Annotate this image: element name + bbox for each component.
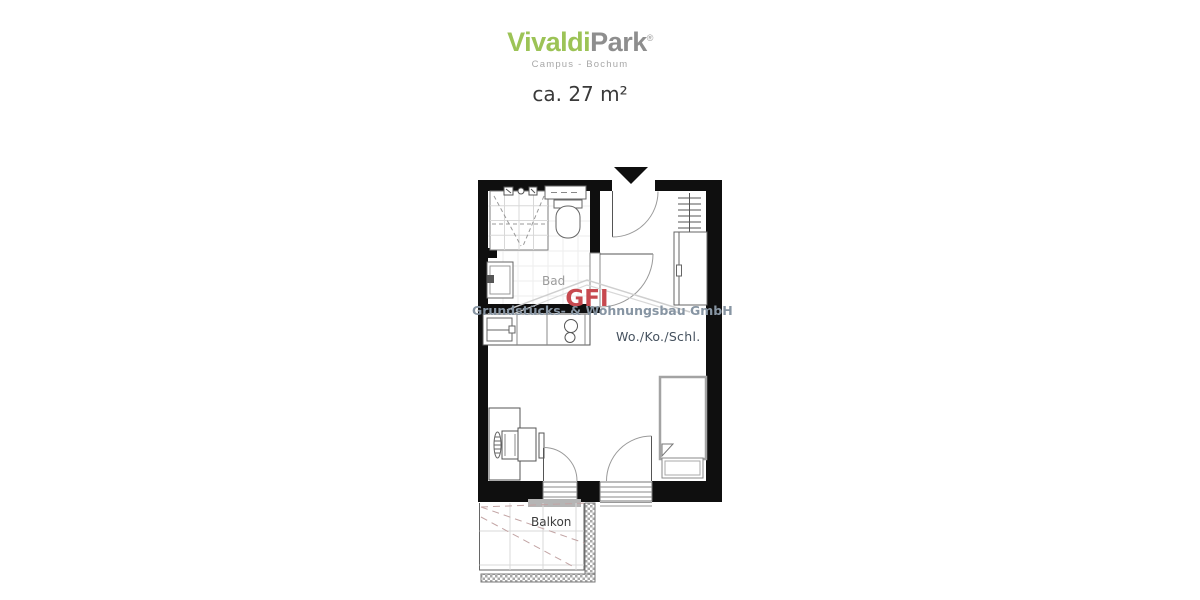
registered-mark: ® [647, 33, 653, 43]
balcony-door-left [544, 448, 578, 482]
brand-logo-gray: Park [590, 27, 647, 57]
brand-logo: VivaldiPark® [430, 28, 730, 56]
floor-plan [470, 160, 740, 590]
balcony-label: Balkon [531, 515, 571, 529]
chair [494, 431, 518, 459]
wardrobe [674, 232, 707, 305]
shelf [545, 186, 586, 199]
bed [660, 377, 706, 478]
brand-subtitle: Campus - Bochum [430, 59, 730, 70]
washbasin [487, 262, 513, 298]
balcony-door-right [607, 436, 652, 481]
balcony [480, 503, 591, 570]
entrance-marker [614, 167, 648, 184]
area-label: ca. 27 m² [430, 82, 730, 106]
living-room-label: Wo./Ko./Schl. [616, 329, 701, 344]
toilet [554, 200, 582, 238]
coat-rack [678, 193, 701, 232]
entry-door [613, 191, 659, 237]
shower [490, 187, 548, 250]
header: VivaldiPark® Campus - Bochum ca. 27 m² [430, 28, 730, 106]
balcony-threshold [528, 499, 581, 507]
right-door-threshold [600, 503, 652, 507]
brand-logo-green: Vivaldi [507, 27, 590, 57]
desk [489, 408, 544, 480]
watermark-company: Grundstücks- & Wohnungsbau GmbH [472, 303, 724, 318]
kitchen-counter [483, 314, 590, 345]
